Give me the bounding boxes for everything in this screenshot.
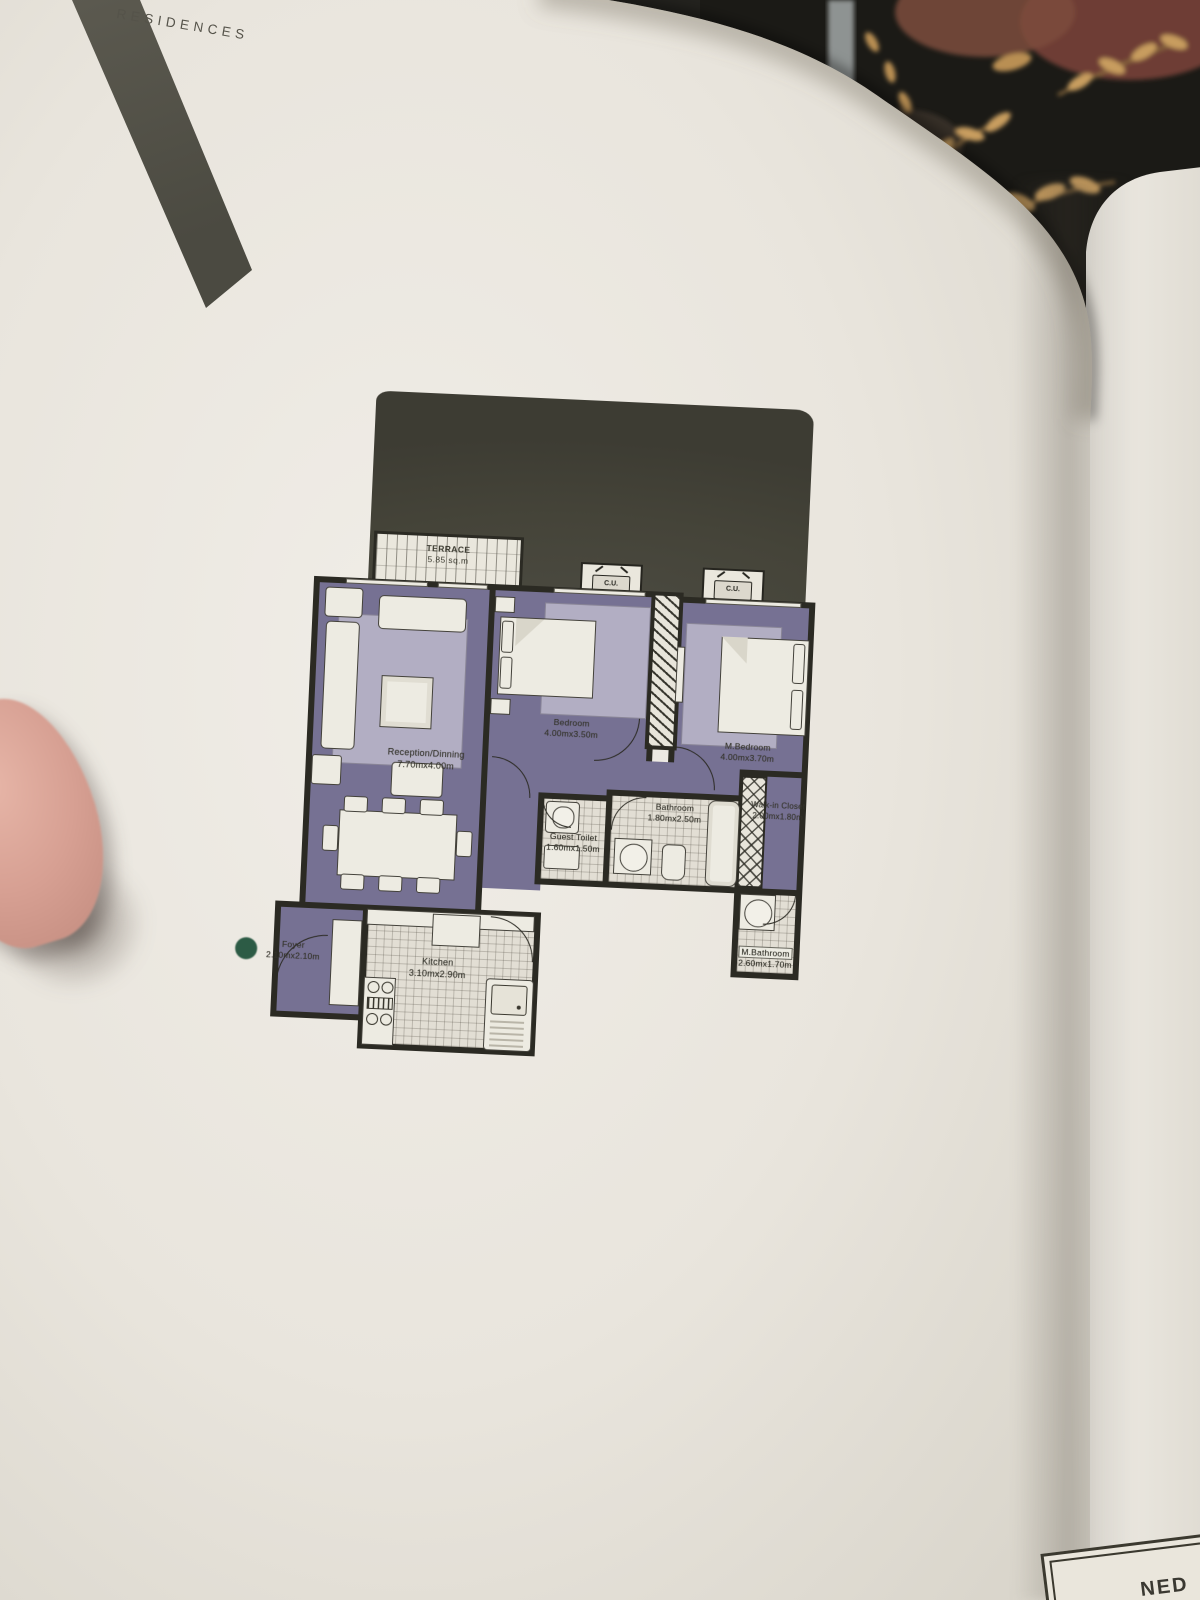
chair <box>416 877 441 894</box>
floor-plan: TERRACE 5.85 sq.m C.U. C.U. <box>227 375 838 1101</box>
dining-table <box>337 809 458 880</box>
nightstand <box>490 698 511 715</box>
stamp-text-fragment: NED <box>1139 1573 1190 1600</box>
pillow <box>501 620 514 653</box>
gutter-shadow <box>1014 180 1134 1600</box>
chair <box>343 795 368 812</box>
sink-basin <box>490 984 527 1016</box>
photo-of-brochure-page: RESIDENCES TERRACE 5.85 sq.m C.U. C.U. <box>0 0 1200 1600</box>
condenser-mark-icon <box>717 571 725 578</box>
stove-vent <box>367 997 394 1010</box>
chair <box>340 873 365 890</box>
wardrobe <box>736 775 767 888</box>
condenser-mark-icon <box>595 565 603 572</box>
sofa <box>320 620 360 749</box>
nightstand <box>495 596 516 613</box>
pillow <box>499 656 512 689</box>
condenser-mark-icon <box>742 572 750 579</box>
chair <box>322 825 339 852</box>
room-label-master-bathroom: M.Bathroom 2.60mx1.70m <box>700 944 831 974</box>
chair <box>381 797 406 814</box>
drain-board <box>489 1018 524 1048</box>
chair <box>378 875 403 892</box>
chair <box>456 831 473 858</box>
pillow <box>792 644 806 685</box>
coffee-table <box>379 675 433 729</box>
sofa <box>378 595 467 633</box>
toilet <box>661 844 687 881</box>
sofa-corner <box>324 586 363 618</box>
chair <box>419 799 444 816</box>
pillow <box>790 690 804 731</box>
condenser-mark-icon <box>620 566 628 573</box>
ottoman <box>311 754 342 785</box>
kitchen-counter-block <box>431 914 480 948</box>
